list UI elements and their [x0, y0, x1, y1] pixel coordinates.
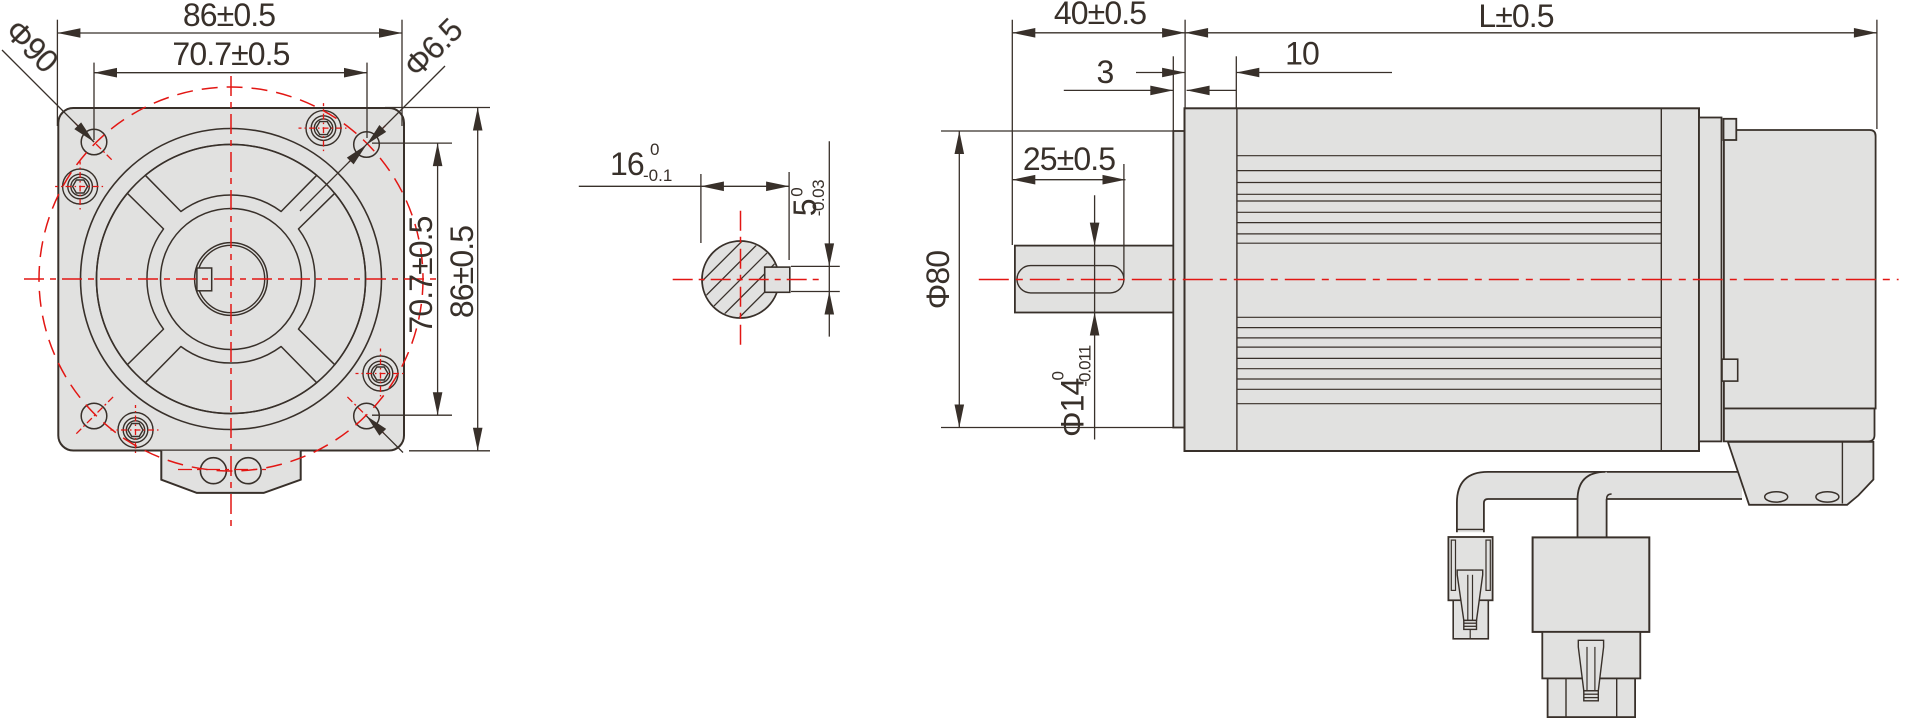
- svg-text:86±0.5: 86±0.5: [444, 226, 480, 318]
- svg-text:-0.011: -0.011: [1075, 345, 1094, 386]
- svg-text:10: 10: [1285, 36, 1319, 72]
- svg-text:3: 3: [1097, 54, 1114, 90]
- svg-text:-0.1: -0.1: [643, 166, 672, 185]
- svg-text:25±0.5: 25±0.5: [1023, 141, 1115, 177]
- svg-text:Φ90: Φ90: [0, 13, 65, 80]
- svg-text:70.7±0.5: 70.7±0.5: [172, 36, 289, 72]
- svg-text:0: 0: [788, 187, 807, 196]
- svg-text:Φ80: Φ80: [920, 251, 956, 310]
- svg-text:70.7±0.5: 70.7±0.5: [403, 216, 439, 333]
- svg-text:Φ6.5: Φ6.5: [397, 12, 469, 84]
- svg-text:-0.03: -0.03: [809, 180, 828, 216]
- svg-text:40±0.5: 40±0.5: [1054, 0, 1146, 31]
- svg-text:0: 0: [1049, 371, 1068, 380]
- svg-text:0: 0: [650, 140, 659, 159]
- svg-text:16: 16: [610, 146, 644, 182]
- svg-text:86±0.5: 86±0.5: [183, 0, 275, 33]
- svg-text:L±0.5: L±0.5: [1478, 0, 1553, 34]
